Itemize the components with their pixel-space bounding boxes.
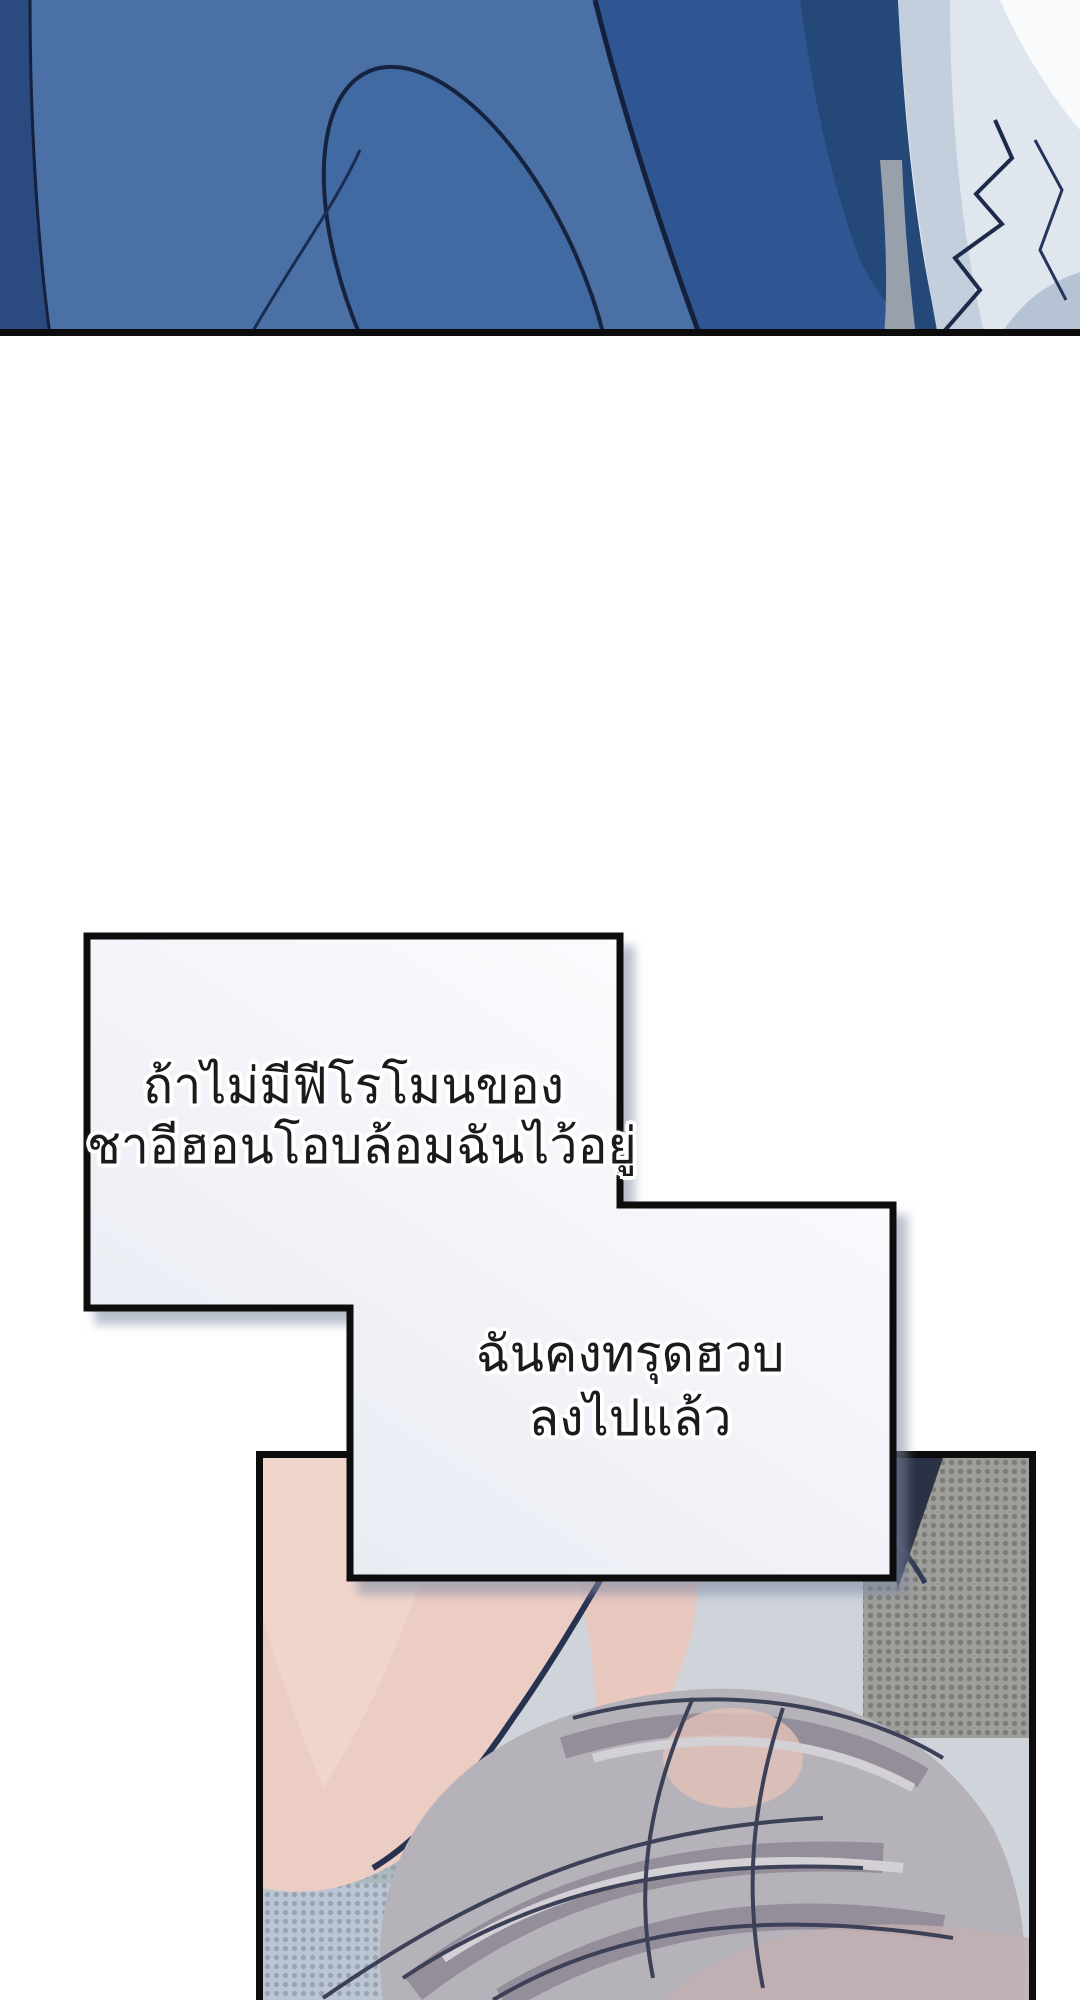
page-root: ถ้าไม่มีฟีโรโมนของ ชาอีฮอนโอบล้อมฉันไว้อ… [0,0,1080,2000]
bubble1-text: ถ้าไม่มีฟีโรโมนของ ชาอีฮอนโอบล้อมฉันไว้อ… [87,1056,620,1176]
bubble2-text: ฉันคงทรุดฮวบ ลงไปแล้ว [352,1322,908,1450]
top-panel-art [0,0,1080,336]
top-panel [0,0,1080,336]
bubble2-line1: ฉันคงทรุดฮวบ [352,1322,908,1386]
bottom-panel [256,1451,1036,2000]
bubble2-line2: ลงไปแล้ว [352,1386,908,1450]
bottom-panel-art [263,1458,1029,2000]
panel-border-bottom [0,329,1080,336]
bubble1-line1: ถ้าไม่มีฟีโรโมนของ [87,1056,620,1116]
bubble1-line2: ชาอีฮอนโอบล้อมฉันไว้อยู่ [87,1116,620,1176]
